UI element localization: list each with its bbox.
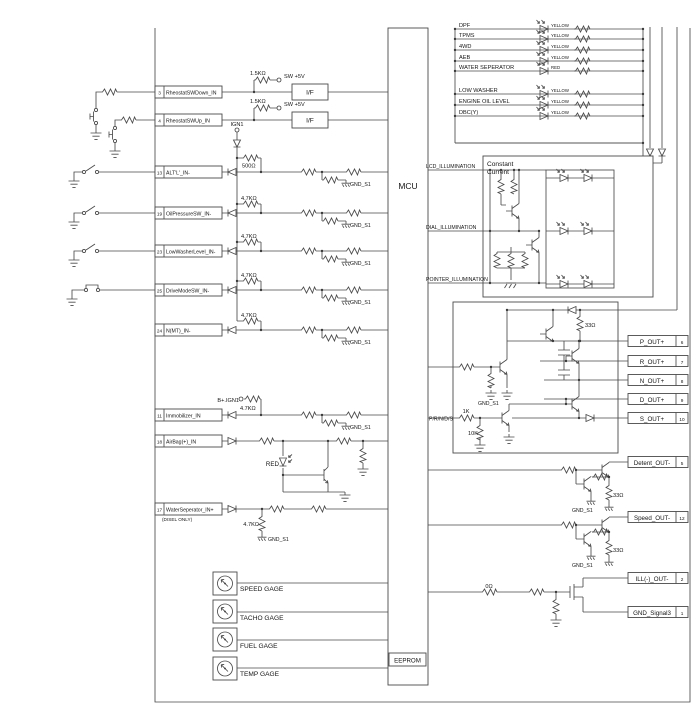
gnd-s1-label: GND_S1 [478,401,499,407]
input-row-water-seperator: 4.7KΩ GND_S1 [222,506,388,544]
lamp-label: DBC(Y) [459,110,478,116]
input-row-drive-mode: GND_S1 [222,287,388,307]
gnd-s1-label: GND_S1 [350,300,371,306]
pin-num: 12 [679,516,685,521]
gauge-tacho: TACHO GAGE [213,600,388,623]
rheostat-up-switch [109,117,155,157]
pin-num: 5 [681,461,684,466]
pin-num: 1 [681,611,684,616]
lamp-row-water-seperator: WATER SEPERATOR RED [454,62,644,75]
pin-num: 10 [679,417,685,422]
wire-color-label: YELLOW [551,33,570,38]
alt-switch [69,165,156,187]
lamp-row-engine-oil: ENGINE OIL LEVEL YELLOW [454,96,644,109]
pin-num: 25 [157,289,163,294]
resistor-label: 1.5KΩ [250,99,266,105]
ign1-rail: IGN1 500Ω 4.7KΩ 4.7KΩ 4.7KΩ 4.7KΩ [230,122,261,330]
resistor-label: 0Ω [485,584,492,590]
ill-output-driver: 0Ω [428,578,628,626]
lamp-label: LOW WASHER [459,88,498,94]
lamp-row-tpms: TPMS YELLOW [454,30,644,43]
pin-label: N_OUT+ [640,378,665,385]
resistor-label: 33Ω [613,548,623,554]
speed-driver: 33Ω GND_S1 [428,517,628,569]
pin-label: R_OUT+ [640,359,665,366]
gnd-s1-label: GND_S1 [350,261,371,267]
pin-num: 18 [157,440,163,445]
gauge-label: FUEL GAGE [240,643,278,650]
pin-box-immobilizer: 11 Immobilizer_IN [155,409,222,421]
gnd-s1-label: GND_S1 [350,182,371,188]
pin-num: 23 [157,250,163,255]
gauge-temp: TEMP GAGE [213,657,388,680]
lamp-label: ENGINE OIL LEVEL [459,99,510,105]
schematic-lines: MCU EEPROM [67,20,691,702]
wire-color-label: YELLOW [551,23,570,28]
wire-color-label: YELLOW [551,88,570,93]
wire-color-label: YELLOW [551,44,570,49]
pin-num: 7 [681,360,684,365]
sw5v-label: SW +5V [284,74,305,80]
pin-box-airbag: 18 AirBag(+)_IN [155,435,222,447]
lamp-label: AEB [459,55,470,61]
gauge-speed: SPEED GAGE [213,572,388,595]
lamp-label: TPMS [459,33,475,39]
pointer-illumination-label: POINTER_ILLUMINATION [426,277,488,283]
rheostat-down-row: 1.5KΩ SW +5V I/F [222,71,388,100]
drive-mode-switch [67,285,156,305]
pin-box-d-out: D_OUT+ 9 [628,394,688,405]
gauge-label: TEMP GAGE [240,671,280,678]
instrument-cluster-schematic: MCU EEPROM [0,0,700,727]
pin-box-rheostat-up: 4 RheostatSWUp_IN [155,114,222,126]
b-ign1-label: B+.IGN1 [217,398,239,404]
gauge-fuel: FUEL GAGE [213,628,388,651]
pin-box-detent-out: Detent_OUT- 5 [628,457,688,468]
gauge-label: SPEED GAGE [240,586,284,593]
lcd-illumination-label: LCD_ILLUMINATION [426,164,475,170]
gnd-s1-label: GND_S1 [350,223,371,229]
pin-label: ALT'L'_IN- [166,171,190,177]
constant-current-label-1: Constant [487,161,514,168]
pin-num: 24 [157,329,163,334]
input-row-oil-pressure: GND_S1 [222,210,388,230]
warning-lamps: DPF YELLOW TPMS YELLOW 4WD YELLOW AEB YE… [454,20,644,163]
pin-box-n-out: N_OUT+ 8 [628,375,688,386]
pin-label: S_OUT+ [640,416,665,423]
left-pin-boxes: 3 RheostatSWDown_IN 4 RheostatSWUp_IN 13… [155,86,222,522]
gauge-label: TACHO GAGE [240,615,284,622]
lamp-row-low-washer: LOW WASHER YELLOW [454,85,644,98]
pin-label: Speed_OUT- [634,515,670,522]
pin-label: WaterSeperator_IN+ [166,508,214,514]
resistor-label: 4.7KΩ [241,234,257,240]
pin-label: P_OUT+ [640,339,665,346]
input-row-alt: GND_S1 [222,169,388,189]
input-row-airbag: RED [222,438,388,502]
ign1-label: IGN1 [230,122,243,128]
lamp-row-4wd: 4WD YELLOW [454,41,644,54]
pin-num: 2 [681,577,684,582]
gnd-s1-label: GND_S1 [350,340,371,346]
if-label: I/F [306,118,314,125]
resistor-label: 10K [468,431,478,437]
pin-num: 11 [157,414,162,419]
pin-label: N(MT)_IN- [166,329,191,335]
pin-num: 9 [681,398,684,403]
pin-num: 4 [158,119,161,124]
pin-box-speed-out: Speed_OUT- 12 [628,512,688,523]
pin-label: ILL(-)_OUT- [635,576,668,583]
pin-label: RheostatSWDown_IN [166,91,217,97]
mcu-label: MCU [398,181,417,191]
wire-color-label: RED [551,65,560,70]
pin-box-ill-out: ILL(-)_OUT- 2 [628,573,688,584]
input-row-neutral: GND_S1 [222,327,388,347]
lamp-label: WATER SEPERATOR [459,65,514,71]
pin-label: Immobilizer_IN [166,414,201,420]
washer-level-switch [69,244,156,266]
pin-box-s-out: S_OUT+ 10 [628,413,688,424]
resistor-label: 4.7KΩ [241,273,257,279]
constant-current-box: Constant Current LCD_ILLUMINATION DIAL_I… [426,156,653,297]
prnds-label: P/R/N/D/S [429,417,453,423]
schematic-page: MCU EEPROM [0,0,700,727]
wire-color-label: YELLOW [551,99,570,104]
lamp-row-aeb: AEB YELLOW [454,52,644,65]
detent-driver: 33Ω GND_S1 [428,462,628,514]
pin-label: AirBag(+)_IN [166,440,196,446]
resistor-label: 33Ω [613,493,623,499]
eeprom-label: EEPROM [394,658,421,665]
resistor-label: 33Ω [585,323,595,329]
pin-label: OilPressureSW_IN- [166,212,212,218]
pin-label: LowWasherLevel_IN- [166,250,216,256]
lamp-label: DPF [459,23,471,29]
pin-box-washer-level: 23 LowWasherLevel_IN- [155,245,222,257]
pin-label: Detent_OUT- [634,460,670,467]
lamp-row-dpf: DPF YELLOW [454,20,644,33]
input-row-immobilizer: B+.IGN1 4.7KΩ GND_S1 [217,396,388,431]
pin-num: 13 [157,171,163,176]
resistor-label: 1K [463,409,470,415]
wire-color-label: YELLOW [551,55,570,60]
right-pin-boxes: P_OUT+ 6 R_OUT+ 7 N_OUT+ 8 D_OUT+ 9 S_OU… [628,336,688,618]
pin-box-water-seperator: 17 WaterSeperator_IN+ (DISEL ONLY) [155,503,222,522]
rheostat-down-switch [90,89,155,139]
gnd-s1-label: GND_S1 [572,563,593,569]
resistor-label: 4.7KΩ [241,313,257,319]
resistor-label: 500Ω [242,164,256,170]
sw5v-label: SW +5V [284,102,305,108]
gnd-s1-label: GND_S1 [350,425,371,431]
pin-box-p-out: P_OUT+ 6 [628,336,688,347]
pin-num: 6 [681,340,684,345]
mcu-box: MCU EEPROM [388,28,428,685]
pin-label: D_OUT+ [640,397,665,404]
pin-num: 17 [157,508,163,513]
wire-color-label: YELLOW [551,110,570,115]
resistor-label: 4.7KΩ [240,406,256,412]
resistor-label: 4.7KΩ [241,196,257,202]
lamp-label: 4WD [459,44,471,50]
pin-label: RheostatSWUp_IN [166,119,210,125]
resistor-label: 1.5KΩ [250,71,266,77]
gnd-s1-label: GND_S1 [572,508,593,514]
pin-num: 3 [158,91,161,96]
pin-num: 19 [157,212,163,217]
disel-only-note: (DISEL ONLY) [162,517,193,522]
red-led-label: RED [266,461,280,468]
lamp-row-dbc: DBC(Y) YELLOW [454,107,644,120]
if-label: I/F [306,90,314,97]
input-row-washer: GND_S1 [222,248,388,268]
pin-box-gnd-signal: GND_Signal3 1 [628,607,688,618]
pin-label: GND_Signal3 [633,610,671,617]
pin-label: DriveModeSW_IN- [166,289,210,295]
pin-box-r-out: R_OUT+ 7 [628,356,688,367]
oil-pressure-switch [69,206,156,228]
dial-illumination-label: DIAL_ILLUMINATION [426,225,477,231]
resistor-label: 4.7KΩ [243,522,259,528]
pin-num: 8 [681,379,684,384]
pin-box-drive-mode: 25 DriveModeSW_IN- [155,284,222,296]
pin-box-rheostat-down: 3 RheostatSWDown_IN [155,86,222,98]
pin-box-neutral: 24 N(MT)_IN- [155,324,222,336]
pin-box-alt: 13 ALT'L'_IN- [155,166,222,178]
pin-box-oil-pressure: 19 OilPressureSW_IN- [155,207,222,219]
gnd-s1-label: GND_S1 [268,537,289,543]
rheostat-up-row: 1.5KΩ SW +5V I/F [222,99,388,128]
